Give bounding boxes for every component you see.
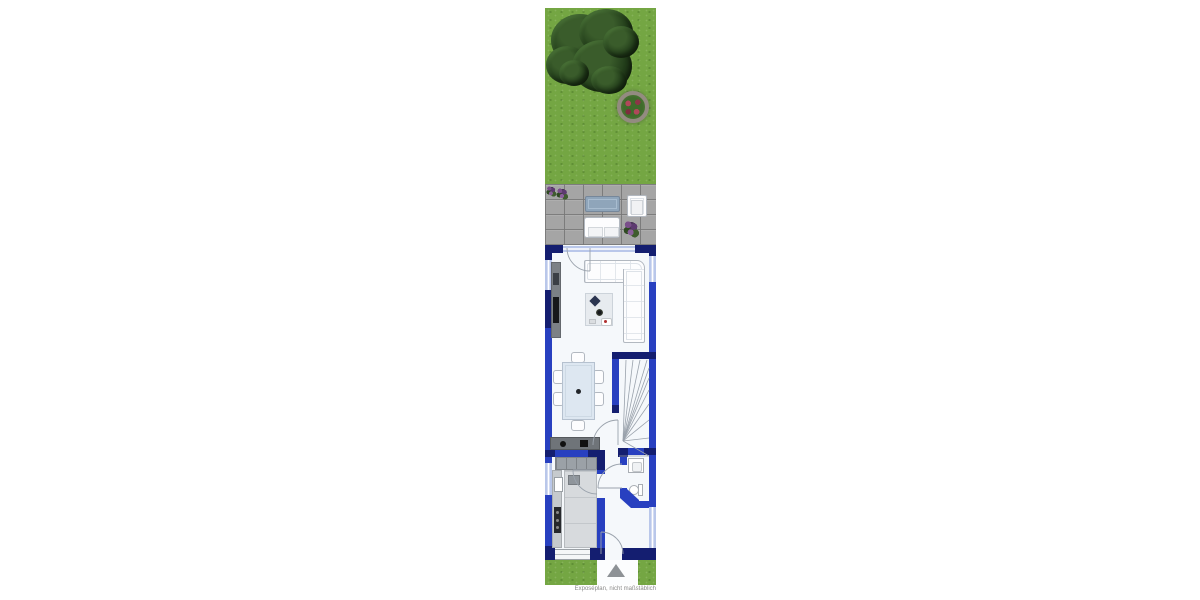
stairs bbox=[619, 360, 649, 456]
wall-diagonal bbox=[620, 489, 639, 508]
page-canvas: Exposéplan, nicht maßstäblich bbox=[0, 0, 1200, 600]
floor-plan-strip bbox=[545, 8, 656, 585]
plan-caption: Exposéplan, nicht maßstäblich bbox=[515, 585, 656, 593]
plan-linework bbox=[545, 8, 656, 585]
entrance-arrow-icon bbox=[607, 564, 625, 577]
garden-lawn-front bbox=[545, 560, 656, 585]
entrance-walkway bbox=[597, 560, 638, 585]
door-swings bbox=[567, 248, 623, 554]
